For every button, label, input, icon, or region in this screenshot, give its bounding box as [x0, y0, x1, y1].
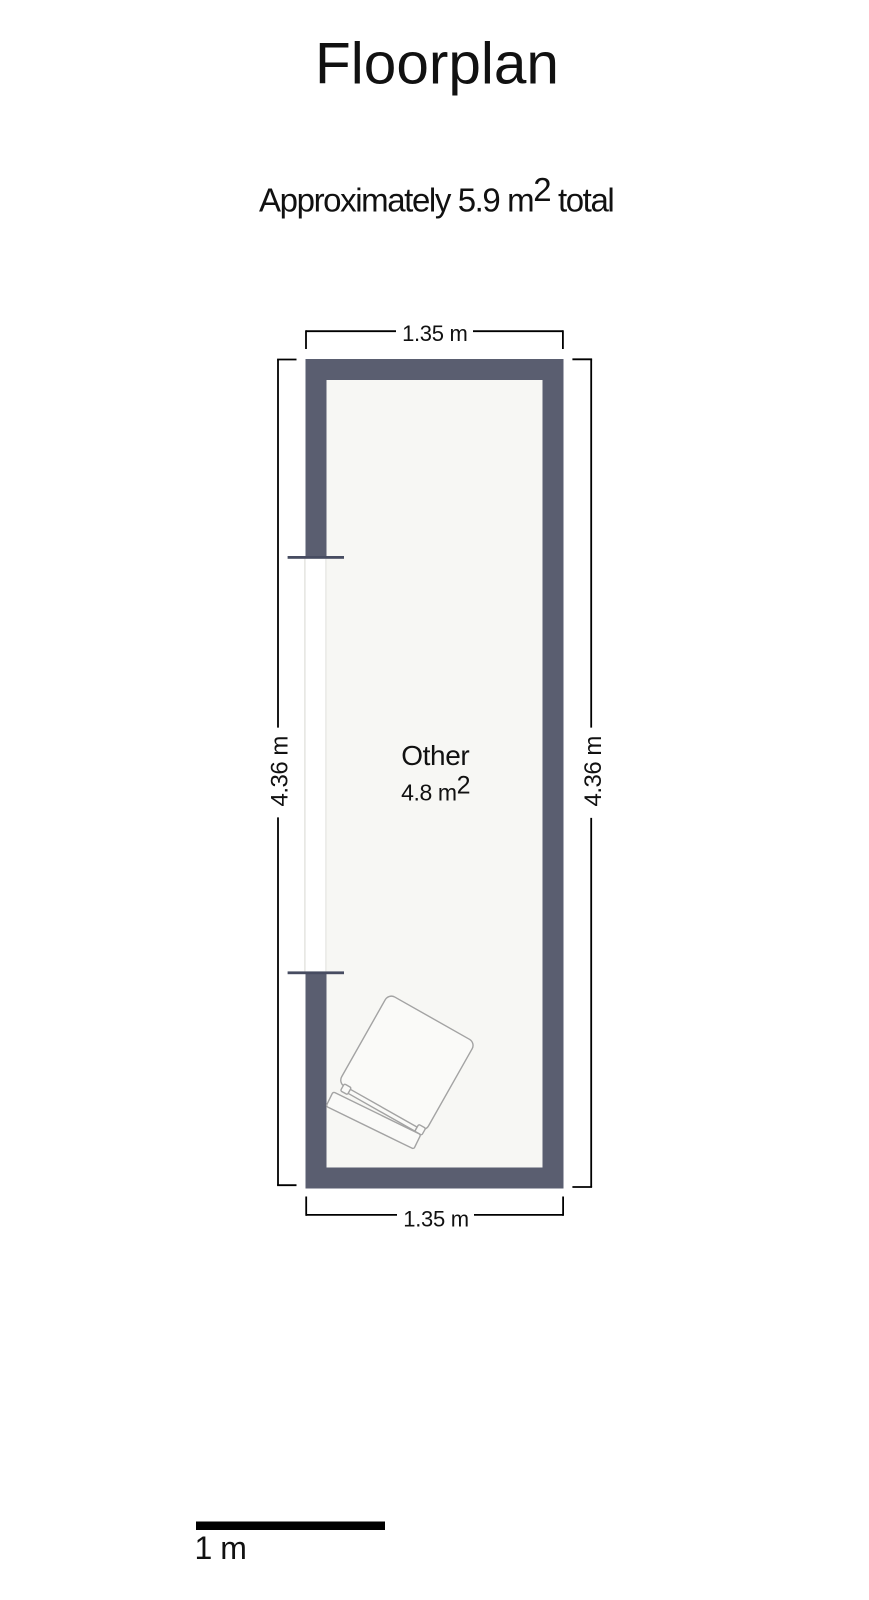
svg-text:1 m: 1 m: [195, 1530, 247, 1566]
svg-text:Floorplan: Floorplan: [315, 32, 559, 97]
svg-text:Other: Other: [401, 740, 469, 771]
svg-text:4.36 m: 4.36 m: [267, 736, 294, 806]
svg-text:4.36 m: 4.36 m: [580, 736, 607, 806]
svg-text:1.35 m: 1.35 m: [403, 1207, 468, 1232]
svg-text:1.35 m: 1.35 m: [402, 321, 467, 346]
